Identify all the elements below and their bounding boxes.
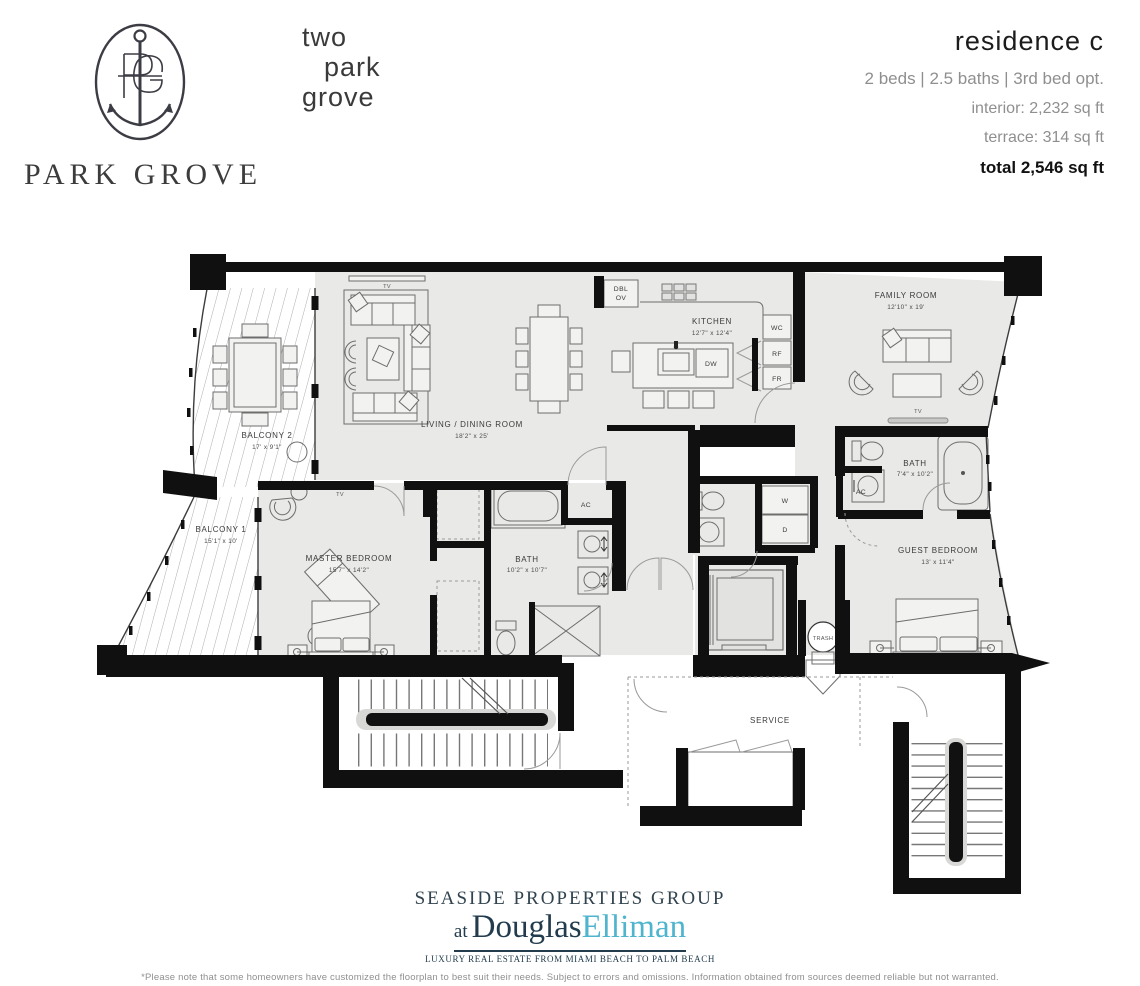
footer-rule (454, 950, 686, 952)
guest-label: GUEST BEDROOM (898, 546, 978, 555)
disclaimer: *Please note that some homeowners have c… (0, 972, 1140, 983)
family-dims: 12'10" x 19' (887, 304, 925, 311)
at-text: at (454, 921, 468, 942)
living-label: LIVING / DINING ROOM (421, 420, 523, 429)
douglas-elliman-logo: atDouglasElliman (0, 910, 1140, 949)
brokerage-group-name: SEASIDE PROPERTIES GROUP (0, 888, 1140, 910)
wc-label: WC (771, 325, 783, 332)
kitchen-label: KITCHEN (692, 317, 732, 326)
floorplan-drawing: TV BALCONY 2 17' x 9'1" BALCONY 1 15'1" … (0, 0, 1140, 986)
floorplan-sheet: PARK GROVE two park grove residence c 2 … (0, 0, 1140, 986)
master-dims: 15'7" x 14'2" (329, 567, 369, 574)
balcony2-label: BALCONY 2 (241, 431, 292, 440)
douglas-text: Douglas (472, 909, 582, 945)
fr-label: FR (772, 376, 782, 383)
rf-label: RF (772, 351, 782, 358)
kitchen-dims: 12'7" x 12'4" (692, 330, 732, 337)
tv-console (888, 418, 948, 423)
coffee-table (893, 374, 941, 397)
tv-label: TV (383, 284, 391, 290)
washer-label: W (782, 498, 789, 505)
tv-label: TV (914, 409, 922, 415)
guest-dims: 13' x 11'4" (921, 559, 954, 566)
footer-tagline: LUXURY REAL ESTATE FROM MIAMI BEACH TO P… (0, 954, 1140, 964)
master-bath-dims: 10'2" x 10'7" (507, 567, 547, 574)
guest-bath-label: BATH (903, 459, 927, 468)
service-label: SERVICE (750, 716, 790, 725)
broker-footer: SEASIDE PROPERTIES GROUP atDouglasEllima… (0, 888, 1140, 983)
balcony1-label: BALCONY 1 (195, 525, 246, 534)
ac-label: AC (581, 502, 591, 509)
service-closet (688, 752, 793, 808)
master-bath-label: BATH (515, 555, 539, 564)
balcony2-dims: 17' x 9'1" (252, 444, 282, 451)
dw-label: DW (705, 361, 717, 368)
dryer-label: D (782, 527, 787, 534)
dbl-ov-label: DBL (614, 286, 628, 293)
dbl-ov-label2: OV (616, 295, 627, 302)
guest-bath-dims: 7'4" x 10'2" (897, 471, 933, 478)
double-oven (604, 280, 638, 307)
trash-label: TRASH (813, 636, 833, 642)
elliman-text: Elliman (582, 909, 686, 945)
coffee-table (367, 338, 399, 380)
tv-console (349, 276, 425, 281)
balcony1-dims: 15'1" x 10' (204, 538, 238, 545)
living-dims: 18'2" x 25' (455, 433, 489, 440)
family-label: FAMILY ROOM (875, 291, 938, 300)
master-label: MASTER BEDROOM (306, 554, 393, 563)
tv-label: TV (336, 492, 344, 498)
dining-table (530, 317, 568, 401)
outdoor-dining-table (229, 338, 281, 412)
ac-label: AC (856, 489, 866, 496)
